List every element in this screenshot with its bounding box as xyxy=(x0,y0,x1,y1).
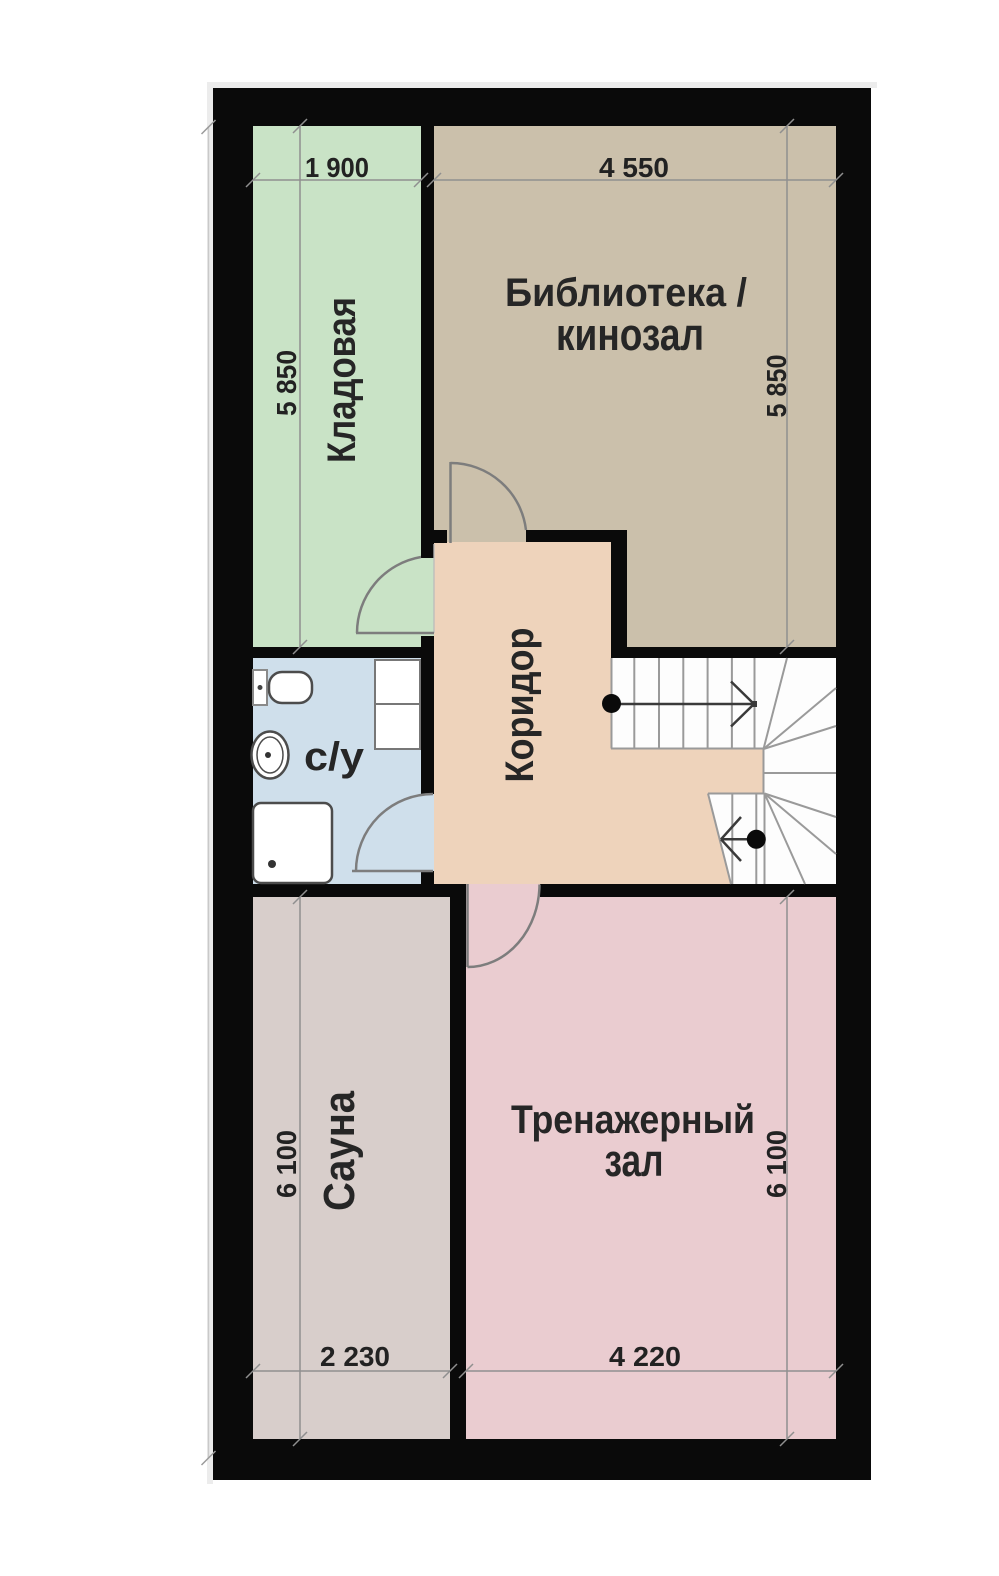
svg-text:4 220: 4 220 xyxy=(609,1341,681,1372)
svg-text:5 850: 5 850 xyxy=(761,355,792,418)
svg-text:5 850: 5 850 xyxy=(271,350,302,416)
svg-text:2 230: 2 230 xyxy=(320,1341,390,1372)
svg-text:кинозал: кинозал xyxy=(556,309,704,360)
svg-text:4 550: 4 550 xyxy=(599,152,669,183)
svg-text:6 100: 6 100 xyxy=(761,1130,792,1198)
svg-text:Коридор: Коридор xyxy=(498,628,542,783)
svg-text:1 900: 1 900 xyxy=(305,152,369,183)
svg-text:6 100: 6 100 xyxy=(271,1130,302,1198)
svg-text:с/у: с/у xyxy=(304,735,365,779)
svg-text:Кладовая: Кладовая xyxy=(320,297,364,463)
svg-text:зал: зал xyxy=(605,1135,664,1186)
svg-text:Сауна: Сауна xyxy=(315,1091,364,1211)
